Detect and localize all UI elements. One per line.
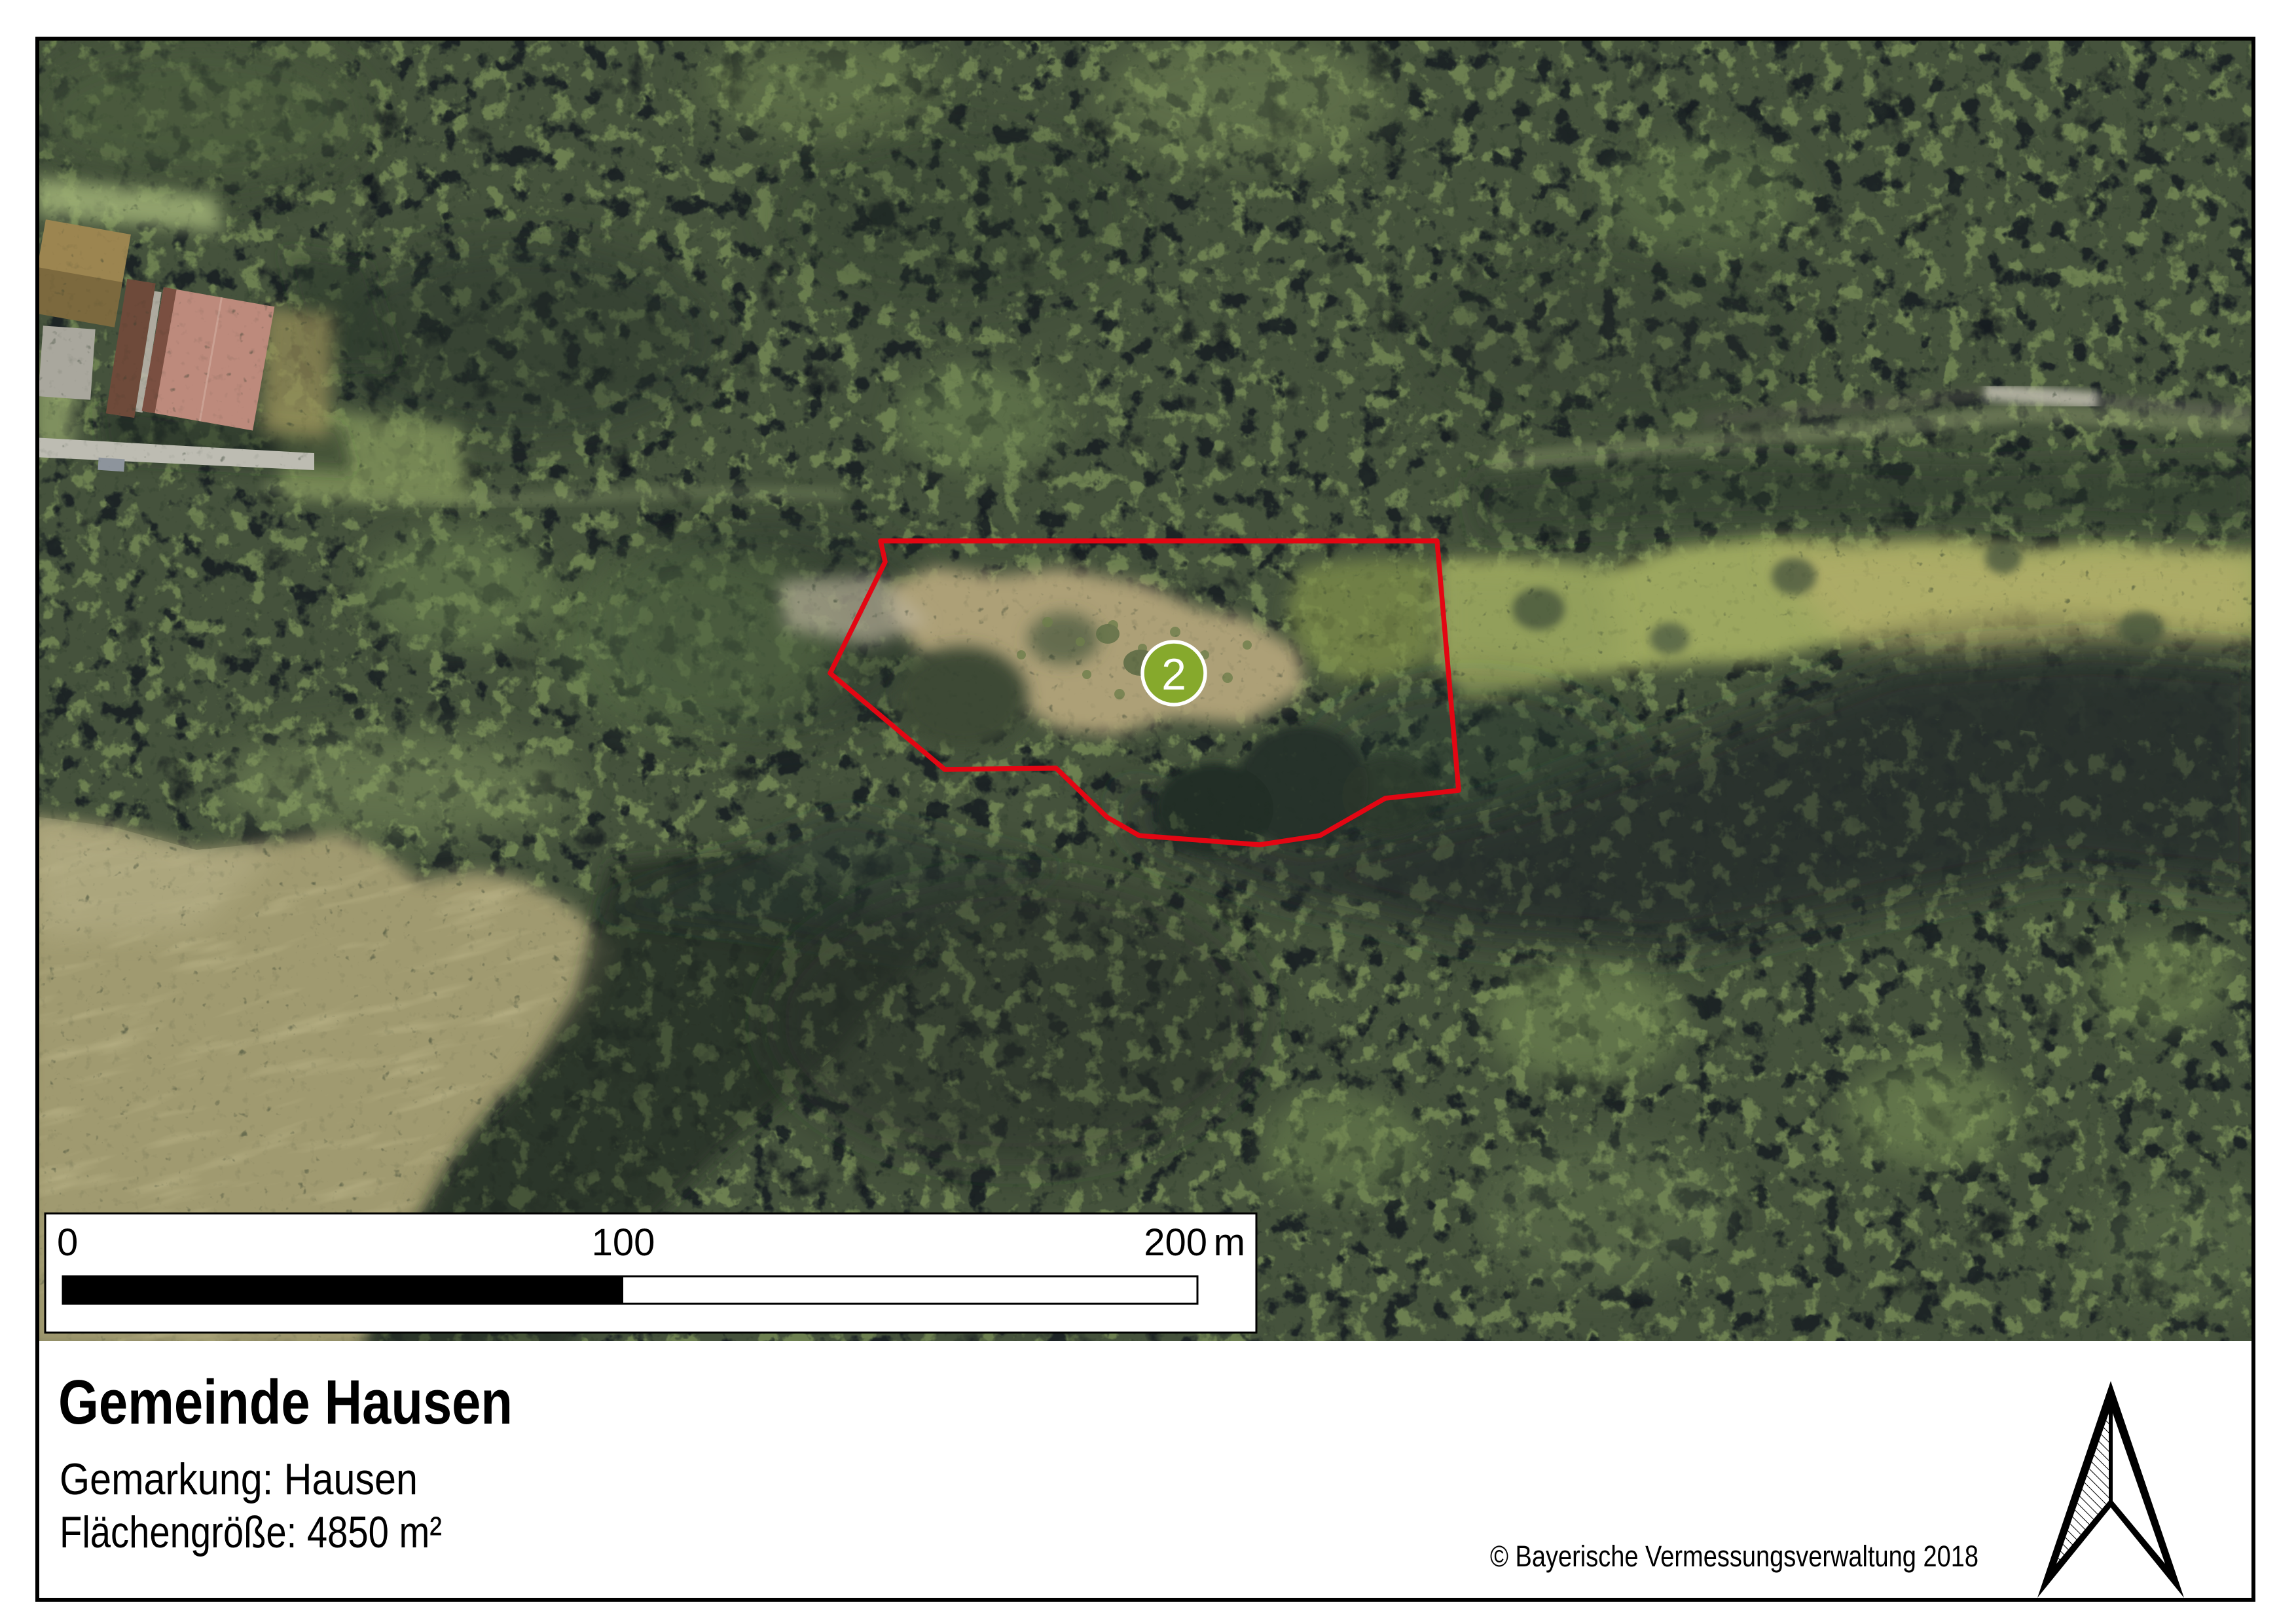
svg-text:Gemeinde Hausen: Gemeinde Hausen bbox=[58, 1367, 513, 1437]
svg-text:Flächengröße: 4850 m²: Flächengröße: 4850 m² bbox=[60, 1507, 442, 1557]
svg-text:0: 0 bbox=[57, 1221, 78, 1264]
svg-text:2: 2 bbox=[1161, 650, 1186, 699]
svg-text:© Bayerische Vermessungsverwal: © Bayerische Vermessungsverwaltung 2018 bbox=[1490, 1540, 1978, 1573]
svg-text:200 m: 200 m bbox=[1144, 1221, 1245, 1264]
svg-text:Gemarkung: Hausen: Gemarkung: Hausen bbox=[60, 1454, 418, 1504]
svg-text:100: 100 bbox=[592, 1221, 655, 1264]
